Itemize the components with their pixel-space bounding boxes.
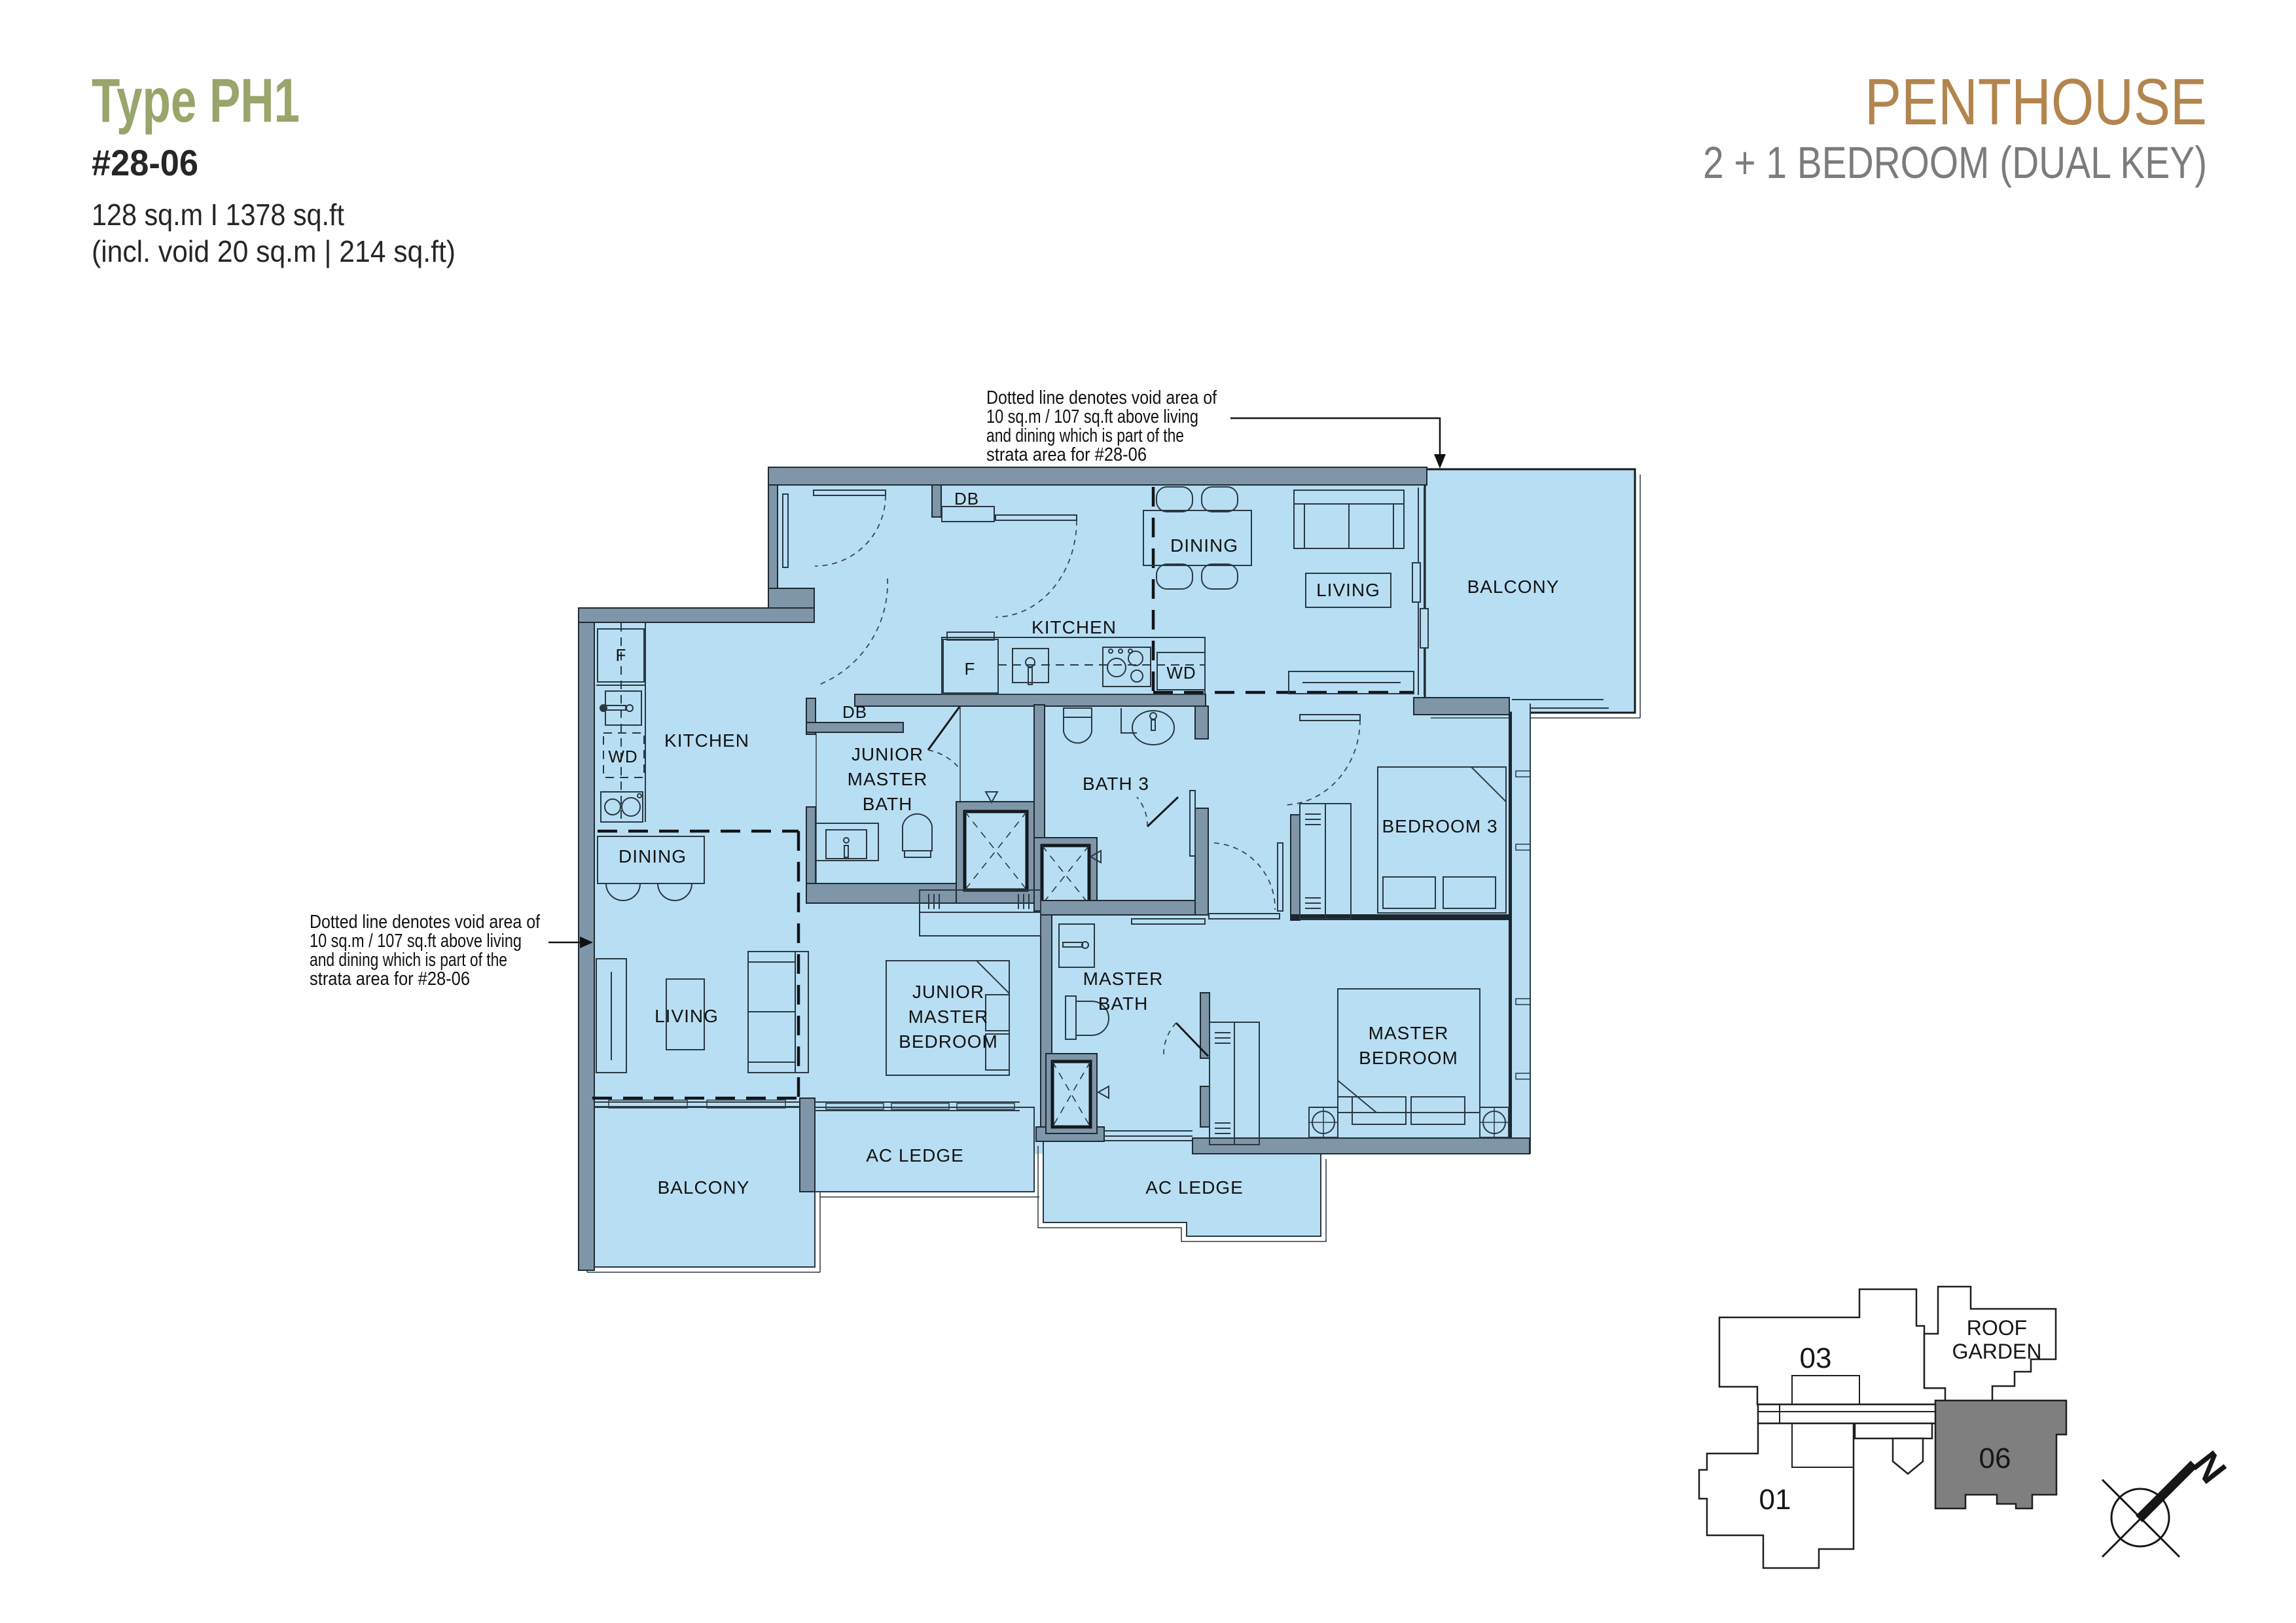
svg-text:WD: WD xyxy=(608,747,637,766)
svg-text:BEDROOM: BEDROOM xyxy=(899,1031,998,1052)
svg-text:LIVING: LIVING xyxy=(655,1006,719,1026)
svg-text:F: F xyxy=(616,645,627,665)
svg-text:Dotted line denotes void area: Dotted line denotes void area of xyxy=(310,912,541,933)
svg-text:AC LEDGE: AC LEDGE xyxy=(1145,1177,1244,1198)
svg-text:PENTHOUSE: PENTHOUSE xyxy=(1865,65,2207,139)
svg-text:BALCONY: BALCONY xyxy=(1467,577,1560,597)
svg-text:JUNIOR: JUNIOR xyxy=(852,744,924,764)
svg-text:10 sq.m / 107 sq.ft above livi: 10 sq.m / 107 sq.ft above living xyxy=(310,931,522,952)
svg-text:DB: DB xyxy=(842,702,867,722)
svg-text:BATH 3: BATH 3 xyxy=(1083,774,1149,794)
svg-text:strata area for #28-06: strata area for #28-06 xyxy=(310,969,470,990)
svg-text:MASTER: MASTER xyxy=(908,1007,989,1027)
svg-text:DB: DB xyxy=(954,489,979,508)
svg-text:Dotted line denotes void area: Dotted line denotes void area of xyxy=(986,387,1217,408)
svg-text:MASTER: MASTER xyxy=(1083,969,1164,989)
svg-text:01: 01 xyxy=(1759,1484,1791,1516)
svg-text:KITCHEN: KITCHEN xyxy=(1031,617,1117,637)
svg-text:(incl. void 20 sq.m | 214 sq.f: (incl. void 20 sq.m | 214 sq.ft) xyxy=(92,234,456,268)
svg-text:strata area for #28-06: strata area for #28-06 xyxy=(986,444,1147,465)
svg-text:#28-06: #28-06 xyxy=(92,142,198,183)
svg-text:WD: WD xyxy=(1166,663,1196,683)
svg-text:DINING: DINING xyxy=(1170,535,1238,556)
svg-text:KITCHEN: KITCHEN xyxy=(664,730,749,751)
svg-text:BATH: BATH xyxy=(1098,993,1149,1014)
svg-text:LIVING: LIVING xyxy=(1316,580,1380,600)
svg-text:DINING: DINING xyxy=(619,846,687,866)
svg-text:F: F xyxy=(965,659,976,679)
svg-text:and dining which is part of th: and dining which is part of the xyxy=(310,950,507,971)
svg-text:BEDROOM: BEDROOM xyxy=(1359,1048,1458,1068)
svg-text:AC LEDGE: AC LEDGE xyxy=(866,1145,964,1166)
svg-text:JUNIOR: JUNIOR xyxy=(912,982,984,1002)
svg-text:and dining which is part of th: and dining which is part of the xyxy=(986,425,1184,446)
svg-text:128 sq.m I 1378 sq.ft: 128 sq.m I 1378 sq.ft xyxy=(92,198,344,232)
svg-text:GARDEN: GARDEN xyxy=(1952,1340,2042,1363)
svg-text:MASTER: MASTER xyxy=(1369,1023,1449,1043)
svg-text:ROOF: ROOF xyxy=(1967,1316,2027,1340)
svg-text:06: 06 xyxy=(1979,1442,2011,1474)
svg-text:Type PH1: Type PH1 xyxy=(92,66,300,135)
svg-text:BATH: BATH xyxy=(863,794,913,814)
svg-text:10 sq.m / 107 sq.ft above livi: 10 sq.m / 107 sq.ft above living xyxy=(986,406,1198,427)
svg-text:2 + 1 BEDROOM (DUAL KEY): 2 + 1 BEDROOM (DUAL KEY) xyxy=(1703,137,2207,188)
svg-text:MASTER: MASTER xyxy=(848,769,928,789)
svg-text:BALCONY: BALCONY xyxy=(658,1177,750,1198)
svg-text:BEDROOM 3: BEDROOM 3 xyxy=(1382,816,1498,836)
svg-text:03: 03 xyxy=(1800,1342,1832,1374)
